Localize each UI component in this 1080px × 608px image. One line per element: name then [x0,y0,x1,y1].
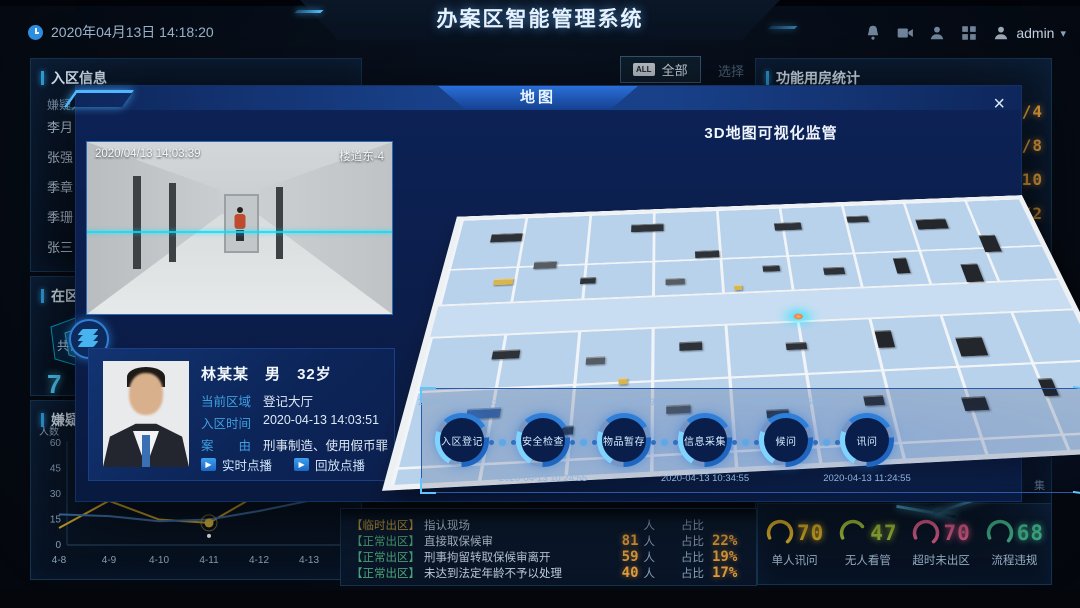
map-object [490,233,523,242]
exit-list-row: 【正常出区】未达到法定年龄不予以处理40人占比17% [341,565,756,581]
timeline-dot [580,439,587,446]
timeline-step-time: 2020-04-13 10:24:55 [468,473,618,484]
letterbox-bottom [0,590,1080,608]
map-object [695,250,719,258]
video-timestamp: 2020/04/13 14:03:39 [95,148,201,160]
map-object [580,277,596,284]
clock-icon [28,25,43,40]
timeline-step-label: 讯问 [840,413,894,467]
map-3d-title: 3D地图可视化监管 [621,122,921,143]
timeline-step[interactable]: 入区登记 [435,413,489,467]
exit-count-value: 59 [605,549,639,565]
exit-unit: 人 [644,533,656,549]
suspect-field-row: 入区时间2020-04-13 14:03:51 [201,413,379,432]
svg-text:45: 45 [50,464,62,475]
field-label: 入区时间 [201,413,263,432]
timeline-dot [742,439,749,446]
all-label: 全部 [662,60,688,79]
alert-gauge: 68流程违规 [979,518,1049,568]
grid-icon[interactable] [960,24,978,42]
playback-button-label: 回放点播 [315,455,365,474]
map-object [846,215,869,222]
field-value: 刑事制造、使用假币罪 [263,435,388,454]
video-scanline [87,231,392,233]
exit-reason-label: 刑事拘留转取保候审离开 [424,549,605,565]
video-person [237,207,243,213]
timeline-step-time: 2020-04-13 10:29:55 [549,397,699,408]
map-object [493,278,514,285]
all-button[interactable]: ALL 全部 [620,56,701,83]
exit-count-value: 40 [605,565,639,581]
suspect-field-row: 案 由刑事制造、使用假币罪 [201,435,388,454]
timeline-step-label: 物品暂存 [597,413,651,467]
gauge-arc-icon [911,518,941,548]
video-camera-name: 楼道东-4 [339,148,384,164]
chevron-down-icon: ▾ [1060,27,1066,40]
exit-pct-value: 22% [712,533,746,549]
svg-text:4-11: 4-11 [199,555,219,566]
playback-button[interactable]: ▶回放点播 [294,455,365,474]
timeline-step[interactable]: 安全检查 [516,413,570,467]
timeline-step-label: 安全检查 [516,413,570,467]
map-object [631,223,663,232]
header-icons: admin ▾ [864,24,1066,42]
exit-unit: 人 [644,565,656,581]
alert-gauge: 47无人看管 [833,518,903,568]
surveillance-video[interactable]: 2020/04/13 14:03:39 楼道东-4 [86,141,393,315]
playback-button-label: 实时点播 [222,455,272,474]
suspect-name-line: 林某某 男 32岁 [201,363,332,384]
field-label: 案 由 [201,435,263,454]
map-object [533,261,557,269]
gauge-value: 70 [797,521,824,545]
timeline-dot [661,439,668,446]
exit-reason-label: 未达到法定年龄不予以处理 [424,565,605,581]
timeline-step-time: 2020-04-13 10:14:55 [387,397,537,408]
svg-text:4-10: 4-10 [149,555,169,566]
gauge-row: 70单人讯问47无人看管70超时未出区68流程违规 [758,518,1051,568]
video-doorframe [133,176,141,269]
exit-list-row: 【正常出区】刑事拘留转取保候审离开59人占比19% [341,549,756,565]
process-timeline: 入区登记2020-04-13 10:14:55安全检查2020-04-13 10… [421,388,1080,493]
decor-corner [1073,477,1080,495]
map-object [679,341,702,351]
field-value: 登记大厅 [263,391,313,410]
suspect-photo [103,361,189,467]
map-object [618,378,627,385]
exit-unit: 人 [644,549,656,565]
map-object [491,349,520,359]
video-person [234,214,245,229]
gauge-value: 47 [870,521,897,545]
field-label: 当前区域 [201,391,263,410]
screen: 办案区智能管理系统 2020年04月13日 14:18:20 admin ▾ A… [0,0,1080,608]
timeline-step-time: 2020-04-13 10:54:55 [711,397,861,408]
svg-text:4-13: 4-13 [299,555,319,566]
video-doorframe [276,187,283,259]
exit-list-row: 【正常出区】直接取保候审81人占比22% [341,533,756,549]
gauge-arc-icon [985,518,1015,548]
play-icon: ▶ [201,458,216,471]
video-icon[interactable] [896,24,914,42]
decor-corner [420,478,436,494]
user-icon [992,24,1010,42]
svg-text:4-12: 4-12 [249,555,269,566]
gauge-label: 超时未出区 [906,552,976,568]
timeline-step-time: 2020-04-13 11:24:55 [792,473,942,484]
svg-text:30: 30 [50,489,62,500]
map-object [915,218,948,229]
exit-pct-value: 17% [712,565,746,581]
decor-corner-accent [64,90,134,107]
ratio-label: 占比 [681,565,704,581]
map-object [585,356,605,364]
suspect-field-row: 当前区域登记大厅 [201,391,313,410]
playback-buttons: ▶实时点播▶回放点播 [201,455,365,474]
field-value: 2020-04-13 14:03:51 [263,413,379,432]
timeline-dot [823,439,830,446]
user-alert-icon[interactable] [928,24,946,42]
ratio-label: 占比 [681,533,704,549]
svg-text:60: 60 [50,438,62,449]
gauge-label: 单人讯问 [760,552,830,568]
modal-shadow [341,509,756,523]
timeline-dot [732,440,737,445]
exit-reason-label: 直接取保候审 [424,533,605,549]
gauge-value: 70 [943,521,970,545]
map-object [734,285,742,291]
timeline-step-label: 候问 [759,413,813,467]
timeline-step[interactable]: 候问 [759,413,813,467]
timeline-dot [489,440,494,445]
exit-status-tag: 【正常出区】 [351,565,420,581]
exit-status-tag: 【正常出区】 [351,549,420,565]
gauge-label: 流程违规 [979,552,1049,568]
timeline-step-label: 信息采集 [678,413,732,467]
timeline-dot [499,439,506,446]
bell-icon[interactable] [864,24,882,42]
inzone-total-value: 7 [47,369,61,400]
header-datetime: 2020年04月13日 14:18:20 [28,22,214,42]
alert-gauge: 70超时未出区 [906,518,976,568]
datetime-text: 2020年04月13日 14:18:20 [51,22,214,42]
map-object [762,265,780,272]
timeline-step[interactable]: 讯问 [840,413,894,467]
admin-username: admin [1016,25,1054,41]
ratio-label: 占比 [681,549,704,565]
decor-corner [1073,386,1080,404]
exit-count-value: 81 [605,533,639,549]
map-modal: 地图 × 2020/04/13 14:03:39 楼道东-4 [75,85,1022,502]
map-object [785,342,807,350]
map-object [666,278,685,285]
timeline-step-time: 2020-04-13 10:34:55 [630,473,780,484]
map-object [774,222,802,231]
gauge-arc-icon [838,518,868,548]
alert-gauge: 70单人讯问 [760,518,830,568]
playback-button[interactable]: ▶实时点播 [201,455,272,474]
close-icon[interactable]: × [993,94,1005,114]
svg-text:人数: 人数 [39,425,59,438]
timeline-dot [813,440,818,445]
exit-list-panel: 【临时出区】指认现场人占比【正常出区】直接取保候审81人占比22%【正常出区】刑… [340,508,757,586]
gauge-value: 68 [1017,521,1044,545]
select-button[interactable]: 选择 [718,61,744,80]
svg-text:4-8: 4-8 [52,555,67,566]
admin-menu[interactable]: admin ▾ [992,24,1066,42]
modal-title-tab: 地图 [438,86,638,110]
suspect-card: 林某某 男 32岁 当前区域登记大厅入区时间2020-04-13 14:03:5… [88,348,395,481]
gauge-arc-icon [765,518,795,548]
timeline-step-label: 入区登记 [435,413,489,467]
alert-gauges-panel: 70单人讯问47无人看管70超时未出区68流程违规 [757,503,1052,585]
gauge-label: 无人看管 [833,552,903,568]
play-icon: ▶ [294,458,309,471]
timeline-dot [570,440,575,445]
timeline-step[interactable]: 信息采集 [678,413,732,467]
svg-text:15: 15 [50,515,62,526]
exit-pct-value: 19% [712,549,746,565]
timeline-step[interactable]: 物品暂存 [597,413,651,467]
all-badge: ALL [633,63,655,76]
map-object [823,267,845,275]
svg-text:0: 0 [55,540,61,551]
exit-status-tag: 【正常出区】 [351,533,420,549]
video-doorframe [169,183,176,262]
timeline-dot [651,440,656,445]
svg-text:4-9: 4-9 [102,555,117,566]
